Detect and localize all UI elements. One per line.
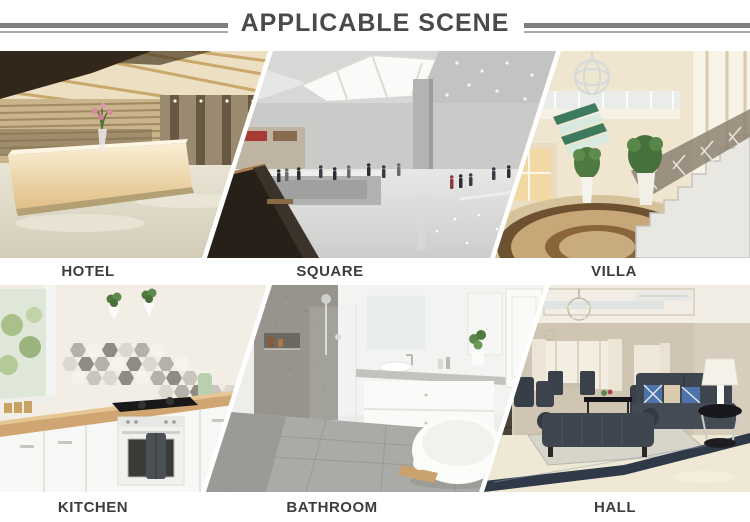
scene-label-kitchen: KITCHEN [58, 499, 128, 516]
square-photo [207, 51, 556, 258]
photo-row-1 [0, 51, 750, 258]
scene-label-bathroom: BATHROOM [286, 499, 377, 516]
title-rule-right [524, 23, 750, 33]
wall-cabinet [468, 293, 502, 355]
oven [118, 417, 184, 485]
scene-label-villa: VILLA [591, 263, 637, 280]
square-photo-art [207, 51, 556, 258]
storefront [235, 127, 305, 169]
window [0, 285, 56, 409]
rule-thick-line [524, 23, 750, 28]
scene-label-hotel: HOTEL [61, 263, 114, 280]
scene-label-hall: HALL [594, 499, 636, 516]
applicable-scene-section: APPLICABLE SCENE [0, 0, 750, 522]
rule-thin-line [524, 31, 750, 33]
mirror [366, 295, 426, 350]
scene-label-square: SQUARE [296, 263, 363, 280]
photo-row-2 [0, 285, 750, 492]
